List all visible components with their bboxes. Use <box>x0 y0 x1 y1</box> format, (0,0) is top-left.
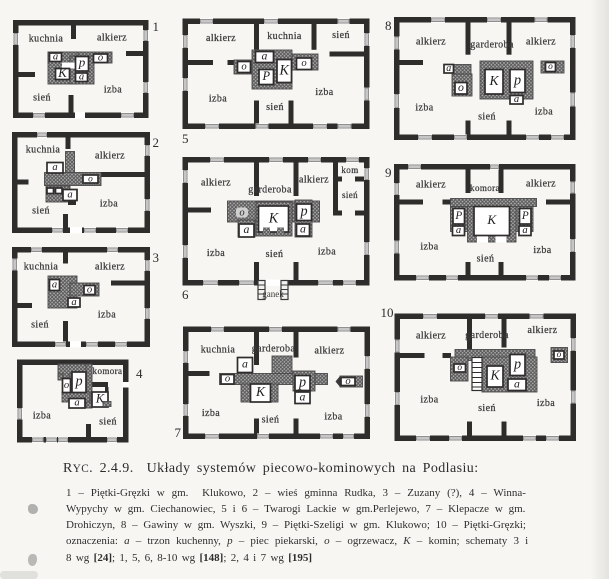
svg-text:izba: izba <box>209 93 227 104</box>
svg-text:4: 4 <box>136 366 143 381</box>
svg-text:5: 5 <box>182 131 189 146</box>
svg-text:sień: sień <box>478 403 496 414</box>
svg-text:o: o <box>301 58 306 69</box>
svg-text:izba: izba <box>98 309 116 320</box>
svg-text:o: o <box>557 350 562 360</box>
svg-text:a: a <box>74 398 79 409</box>
svg-text:alkierz: alkierz <box>95 261 125 272</box>
svg-text:komora: komora <box>470 183 500 193</box>
svg-text:sień: sień <box>99 416 117 427</box>
svg-text:izba: izba <box>535 106 553 117</box>
svg-text:a: a <box>514 376 520 390</box>
svg-text:a: a <box>522 225 527 236</box>
svg-text:izba: izba <box>533 245 551 256</box>
svg-text:p: p <box>299 204 307 220</box>
svg-text:alkierz: alkierz <box>206 33 236 44</box>
svg-text:izba: izba <box>420 241 438 252</box>
svg-text:alkierz: alkierz <box>201 177 231 188</box>
svg-text:izba: izba <box>33 410 51 421</box>
svg-text:kom: kom <box>341 165 358 175</box>
svg-text:sień: sień <box>266 102 284 113</box>
svg-text:P: P <box>521 210 529 222</box>
svg-text:o: o <box>239 207 244 218</box>
svg-text:o: o <box>241 61 246 72</box>
svg-text:sień: sień <box>342 190 358 200</box>
svg-text:2: 2 <box>153 135 160 150</box>
svg-text:a: a <box>262 49 268 63</box>
svg-text:P: P <box>454 210 462 222</box>
svg-text:alkierz: alkierz <box>416 330 446 341</box>
svg-text:sień: sień <box>32 205 50 216</box>
svg-text:a: a <box>300 222 306 236</box>
svg-text:sień: sień <box>33 92 51 103</box>
svg-text:o: o <box>64 380 69 391</box>
svg-text:a: a <box>71 297 76 308</box>
svg-text:izba: izba <box>324 411 342 422</box>
svg-text:6: 6 <box>182 287 189 302</box>
svg-text:P: P <box>261 69 270 83</box>
svg-text:a: a <box>67 189 72 200</box>
svg-text:p: p <box>298 374 306 390</box>
svg-text:K: K <box>488 73 499 88</box>
svg-text:a: a <box>242 357 248 371</box>
svg-text:kuchnia: kuchnia <box>201 344 236 355</box>
svg-text:alkierz: alkierz <box>416 179 446 190</box>
svg-text:a: a <box>53 52 58 63</box>
svg-text:3: 3 <box>153 250 160 265</box>
svg-text:komora: komora <box>93 366 123 376</box>
svg-text:a: a <box>300 389 306 403</box>
svg-text:izba: izba <box>318 246 336 257</box>
svg-text:alkierz: alkierz <box>416 36 446 47</box>
svg-text:K: K <box>279 62 291 78</box>
svg-text:izba: izba <box>202 408 220 419</box>
svg-text:izba: izba <box>537 398 555 409</box>
svg-text:izba: izba <box>415 102 433 113</box>
svg-text:garderoba: garderoba <box>248 184 292 195</box>
svg-text:o: o <box>548 62 553 72</box>
svg-text:garderoba: garderoba <box>470 39 514 50</box>
svg-text:1: 1 <box>153 19 160 34</box>
svg-text:izba: izba <box>104 84 122 95</box>
svg-text:garderoba: garderoba <box>252 343 296 354</box>
svg-text:o: o <box>345 376 350 387</box>
svg-text:o: o <box>457 363 462 373</box>
svg-text:izba: izba <box>315 87 333 98</box>
svg-text:sień: sień <box>262 414 280 425</box>
svg-text:ganek: ganek <box>262 289 284 299</box>
svg-text:a: a <box>514 94 519 105</box>
svg-text:sień: sień <box>477 253 495 264</box>
svg-text:a: a <box>52 279 57 290</box>
svg-text:a: a <box>79 72 84 83</box>
svg-text:a: a <box>52 162 57 173</box>
svg-text:sień: sień <box>266 249 284 260</box>
svg-text:alkierz: alkierz <box>299 174 329 185</box>
svg-text:p: p <box>513 356 521 372</box>
svg-text:o: o <box>87 284 92 295</box>
svg-text:o: o <box>225 374 230 385</box>
svg-text:izba: izba <box>420 394 438 405</box>
svg-text:kuchnia: kuchnia <box>26 144 61 155</box>
svg-text:alkierz: alkierz <box>95 150 125 161</box>
svg-text:o: o <box>98 53 103 64</box>
svg-text:8: 8 <box>385 18 392 33</box>
svg-text:K: K <box>57 65 68 80</box>
svg-text:7: 7 <box>175 425 182 440</box>
svg-text:a: a <box>456 225 461 236</box>
svg-text:alkierz: alkierz <box>97 32 127 43</box>
svg-text:a: a <box>244 222 250 236</box>
svg-text:alkierz: alkierz <box>526 36 556 47</box>
svg-text:10: 10 <box>381 305 394 320</box>
svg-text:K: K <box>489 368 500 383</box>
svg-text:9: 9 <box>385 165 392 180</box>
svg-text:kuchnia: kuchnia <box>267 31 302 42</box>
svg-text:p: p <box>74 374 82 390</box>
svg-text:sień: sień <box>478 111 496 122</box>
svg-text:K: K <box>486 212 497 227</box>
svg-text:izba: izba <box>100 198 118 209</box>
svg-text:garderoba: garderoba <box>465 330 509 341</box>
svg-text:sień: sień <box>31 319 49 330</box>
svg-text:o: o <box>458 80 464 94</box>
svg-text:alkierz: alkierz <box>526 178 556 189</box>
svg-text:K: K <box>268 210 280 226</box>
svg-text:p: p <box>78 55 86 70</box>
svg-text:izba: izba <box>207 248 225 259</box>
svg-text:o: o <box>88 174 93 184</box>
svg-text:kuchnia: kuchnia <box>29 33 64 44</box>
svg-text:sień: sień <box>332 30 350 41</box>
svg-text:a: a <box>446 63 451 74</box>
svg-text:p: p <box>513 72 521 88</box>
svg-text:K: K <box>255 384 266 399</box>
svg-text:kuchnia: kuchnia <box>24 261 59 272</box>
svg-text:alkierz: alkierz <box>527 325 557 336</box>
svg-text:alkierz: alkierz <box>314 345 344 356</box>
